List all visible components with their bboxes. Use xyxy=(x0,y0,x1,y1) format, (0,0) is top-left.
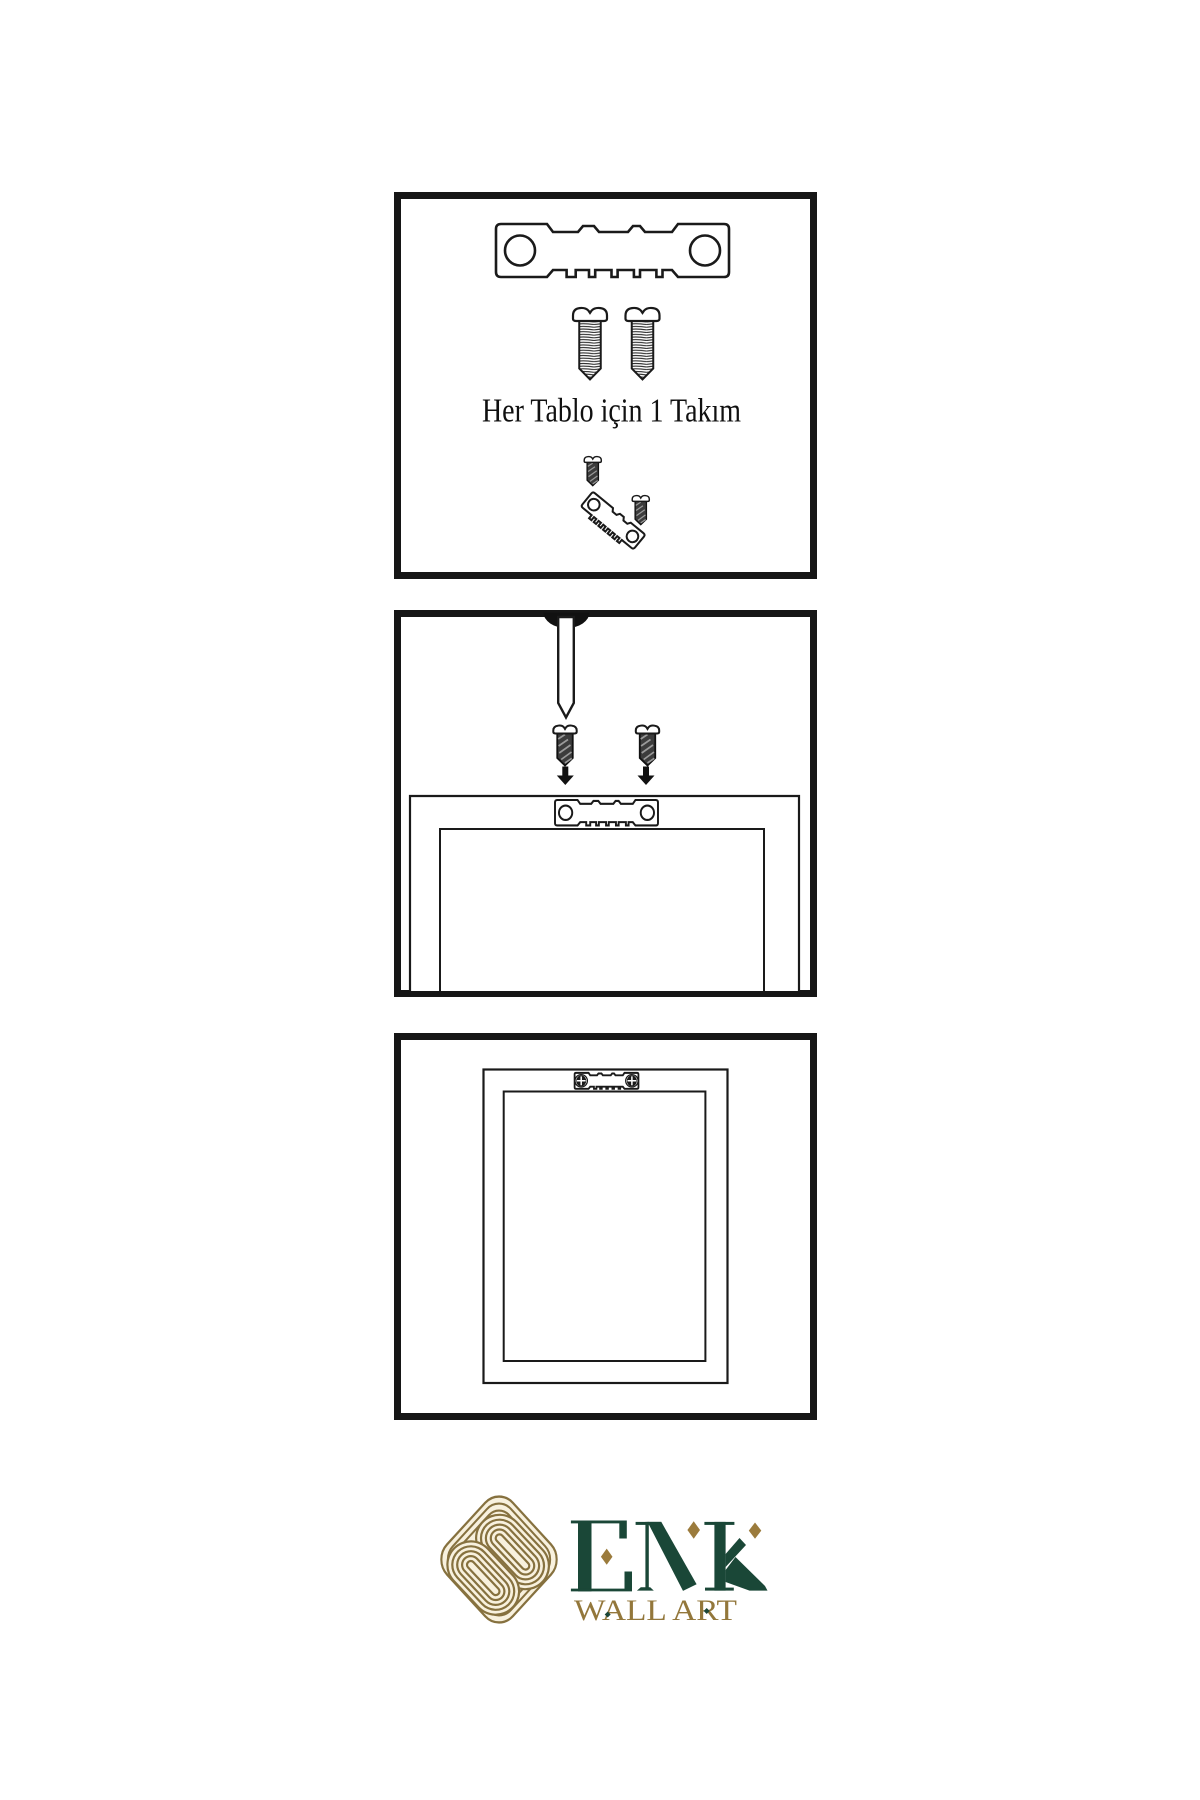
svg-text:WALL ART: WALL ART xyxy=(574,1594,737,1627)
svg-text:Her Tablo için 1 Takım: Her Tablo için 1 Takım xyxy=(482,393,741,430)
